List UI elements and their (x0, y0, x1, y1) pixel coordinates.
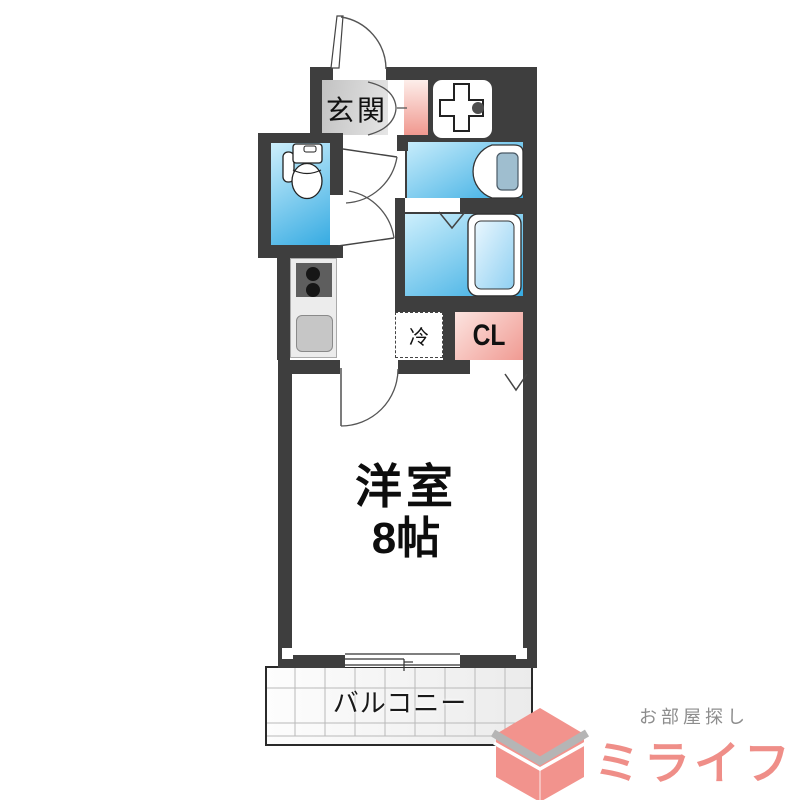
pillar-notch (516, 648, 527, 659)
entrance-door-leaf (331, 16, 343, 68)
sliding-window-icon (345, 652, 460, 671)
refrigerator-label: 冷 (395, 312, 443, 358)
washbasin-icon (473, 145, 523, 198)
pillar-notch (282, 648, 293, 659)
folding-door-v-icon (439, 212, 465, 228)
door-swing-arc (341, 17, 386, 69)
entrance-doorway (333, 67, 386, 80)
balcony-label: バルコニー (290, 686, 510, 716)
door-leaf (338, 238, 394, 246)
logo-tagline: お部屋探し (634, 704, 754, 728)
bathtub-icon (468, 214, 521, 296)
cube-logo-icon (493, 708, 587, 800)
door-swing-arc (349, 191, 394, 238)
folding-door-v-icon (505, 374, 527, 390)
entrance-label: 玄関 (324, 93, 390, 125)
floorplan-canvas: 玄関 冷 CL 洋室 8帖 バルコニー お部屋探し ミライフ (0, 0, 800, 800)
room-size-label: 8帖 (300, 510, 512, 558)
door-swing-arc (341, 369, 398, 426)
door-leaf (343, 149, 397, 157)
closet-label: CL (461, 312, 517, 360)
washing-machine-pan-icon (440, 84, 484, 131)
plan-overlay (0, 0, 800, 800)
drain-icon (472, 102, 484, 114)
toilet-icon (283, 144, 322, 199)
door-swing-arc (346, 157, 397, 203)
room-label: 洋室 (300, 456, 512, 508)
logo-brand-text: ミライフ (588, 734, 800, 786)
